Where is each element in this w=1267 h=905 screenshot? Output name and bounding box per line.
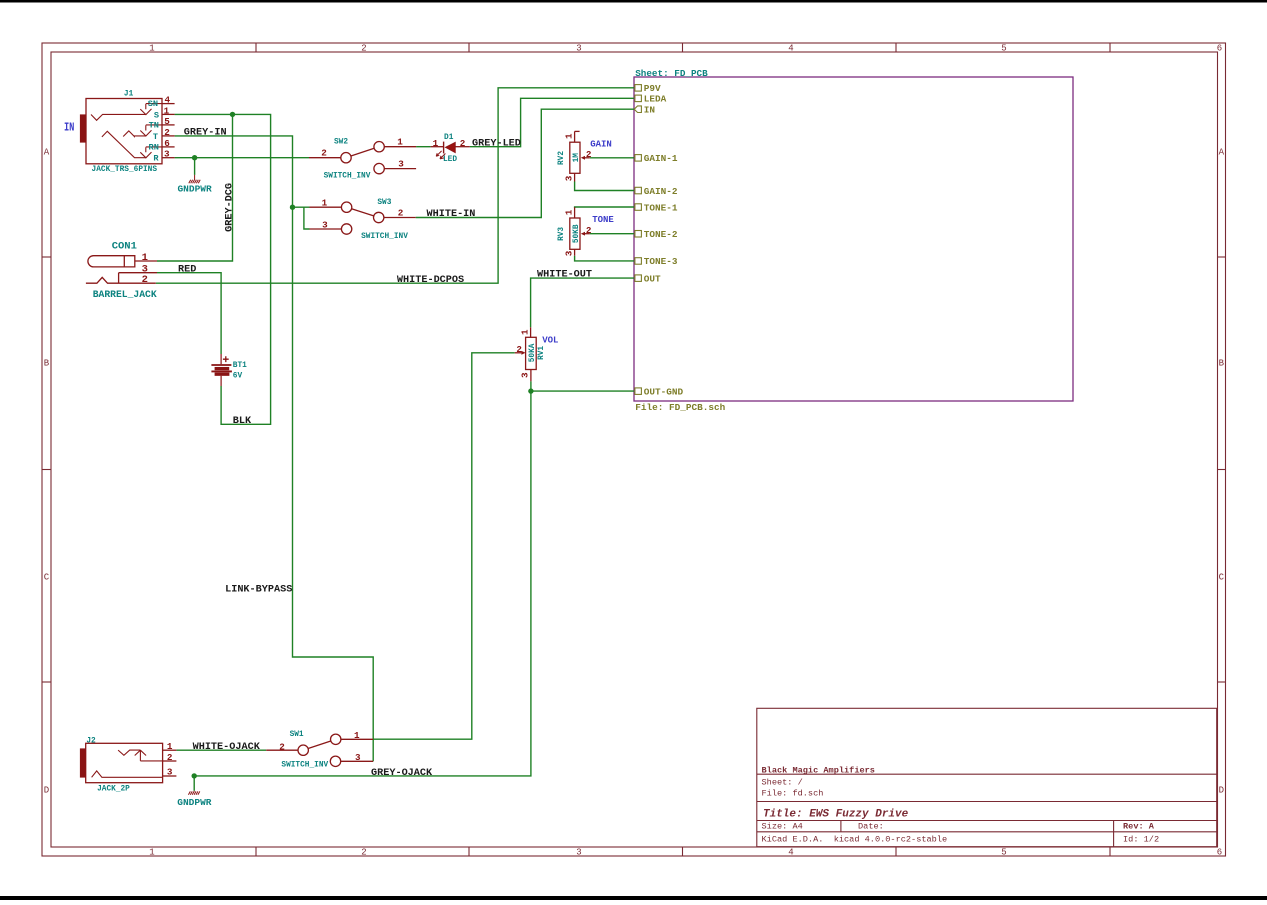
svg-text:6: 6 bbox=[164, 138, 170, 149]
svg-text:RN: RN bbox=[149, 143, 159, 153]
svg-text:SW1: SW1 bbox=[290, 731, 304, 739]
svg-text:1: 1 bbox=[167, 741, 173, 752]
svg-text:GAIN-2: GAIN-2 bbox=[644, 186, 678, 197]
svg-text:CON1: CON1 bbox=[112, 240, 137, 252]
svg-text:1: 1 bbox=[397, 136, 403, 147]
svg-text:File: fd.sch: File: fd.sch bbox=[762, 789, 824, 799]
svg-text:3: 3 bbox=[322, 220, 328, 231]
svg-text:RV3: RV3 bbox=[558, 227, 566, 241]
svg-text:WHITE-DCPOS: WHITE-DCPOS bbox=[397, 275, 464, 286]
svg-text:2: 2 bbox=[398, 208, 404, 219]
svg-text:GNDPWR: GNDPWR bbox=[177, 797, 212, 808]
svg-text:SWITCH_INV: SWITCH_INV bbox=[324, 173, 371, 181]
svg-text:WHITE-OUT: WHITE-OUT bbox=[537, 269, 592, 280]
svg-text:P9V: P9V bbox=[644, 83, 661, 94]
svg-text:6: 6 bbox=[1217, 44, 1222, 54]
svg-text:T: T bbox=[153, 132, 158, 142]
svg-text:S: S bbox=[154, 111, 159, 121]
svg-text:Date:: Date: bbox=[858, 822, 884, 832]
svg-text:GREY-IN: GREY-IN bbox=[184, 127, 227, 138]
svg-text:File: FD_PCB.sch: File: FD_PCB.sch bbox=[635, 402, 725, 413]
svg-text:SN: SN bbox=[148, 99, 158, 109]
svg-text:BARREL_JACK: BARREL_JACK bbox=[93, 289, 157, 300]
svg-text:2: 2 bbox=[516, 344, 522, 355]
svg-text:WHITE-OJACK: WHITE-OJACK bbox=[193, 742, 261, 753]
svg-text:3: 3 bbox=[564, 175, 575, 181]
svg-text:Sheet: FD_PCB: Sheet: FD_PCB bbox=[635, 68, 708, 79]
svg-text:GAIN-1: GAIN-1 bbox=[644, 153, 678, 164]
svg-text:5: 5 bbox=[1001, 848, 1006, 858]
svg-text:OUT: OUT bbox=[644, 273, 661, 284]
svg-text:2: 2 bbox=[167, 752, 173, 763]
svg-text:1M: 1M bbox=[573, 153, 581, 163]
svg-text:LED: LED bbox=[443, 156, 457, 164]
svg-text:J1: J1 bbox=[124, 90, 134, 98]
svg-text:RV2: RV2 bbox=[558, 151, 566, 165]
svg-text:3: 3 bbox=[564, 250, 575, 256]
svg-text:1: 1 bbox=[149, 848, 154, 858]
svg-text:OUT-GND: OUT-GND bbox=[644, 386, 684, 397]
svg-text:A: A bbox=[1219, 148, 1225, 158]
svg-text:3: 3 bbox=[398, 158, 404, 169]
svg-text:2: 2 bbox=[586, 225, 592, 236]
svg-text:2: 2 bbox=[460, 138, 466, 149]
svg-text:Sheet: /: Sheet: / bbox=[762, 777, 803, 787]
svg-text:D1: D1 bbox=[444, 134, 454, 142]
svg-text:BT1: BT1 bbox=[233, 362, 247, 370]
svg-text:2: 2 bbox=[361, 44, 366, 54]
svg-text:1: 1 bbox=[142, 252, 148, 264]
svg-text:LEDA: LEDA bbox=[644, 94, 667, 105]
svg-text:1: 1 bbox=[433, 138, 439, 149]
svg-text:R: R bbox=[153, 154, 159, 164]
svg-text:5: 5 bbox=[1001, 44, 1006, 54]
svg-text:2: 2 bbox=[142, 274, 148, 286]
svg-text:2: 2 bbox=[321, 148, 327, 159]
svg-text:BLK: BLK bbox=[233, 416, 252, 427]
svg-text:SW3: SW3 bbox=[377, 199, 391, 207]
svg-text:1: 1 bbox=[564, 133, 575, 139]
svg-text:6: 6 bbox=[1217, 848, 1222, 858]
svg-text:Rev: A: Rev: A bbox=[1123, 822, 1155, 832]
svg-text:TONE-1: TONE-1 bbox=[644, 202, 678, 213]
svg-text:VOL: VOL bbox=[542, 336, 558, 346]
svg-text:1: 1 bbox=[149, 44, 154, 54]
svg-text:TN: TN bbox=[149, 121, 159, 131]
svg-text:GAIN: GAIN bbox=[590, 140, 612, 150]
svg-text:JACK_2P: JACK_2P bbox=[97, 785, 130, 793]
svg-text:1: 1 bbox=[564, 209, 575, 215]
svg-text:1: 1 bbox=[519, 329, 530, 335]
svg-text:1: 1 bbox=[354, 730, 360, 741]
svg-text:RV1: RV1 bbox=[538, 346, 546, 360]
svg-text:B: B bbox=[1219, 359, 1225, 369]
svg-text:Size: A4: Size: A4 bbox=[762, 822, 803, 832]
svg-text:GREY-DCG: GREY-DCG bbox=[225, 183, 236, 232]
svg-text:GREY-LED: GREY-LED bbox=[472, 138, 521, 149]
svg-text:TONE-3: TONE-3 bbox=[644, 256, 678, 267]
svg-text:KiCad E.D.A. kicad 4.0.0-rc2-: KiCad E.D.A. kicad 4.0.0-rc2-stable bbox=[762, 835, 948, 845]
svg-text:2: 2 bbox=[164, 127, 170, 138]
svg-text:1: 1 bbox=[322, 198, 328, 209]
svg-text:Black Magic Amplifiers: Black Magic Amplifiers bbox=[762, 765, 875, 775]
svg-text:1: 1 bbox=[164, 106, 170, 117]
svg-text:SWITCH_INV: SWITCH_INV bbox=[361, 233, 408, 241]
svg-text:3: 3 bbox=[355, 752, 361, 763]
svg-text:SW2: SW2 bbox=[334, 138, 348, 146]
svg-text:RED: RED bbox=[178, 264, 196, 275]
svg-text:50KA: 50KA bbox=[529, 343, 537, 362]
svg-text:4: 4 bbox=[788, 44, 793, 54]
svg-text:LINK-BYPASS: LINK-BYPASS bbox=[225, 584, 292, 595]
svg-text:SWITCH_INV: SWITCH_INV bbox=[281, 761, 328, 769]
svg-text:B: B bbox=[44, 359, 50, 369]
svg-text:2: 2 bbox=[361, 848, 366, 858]
svg-text:5: 5 bbox=[164, 116, 170, 127]
svg-text:3: 3 bbox=[164, 148, 170, 159]
svg-text:4: 4 bbox=[788, 848, 793, 858]
svg-text:C: C bbox=[44, 573, 50, 583]
svg-text:A: A bbox=[44, 148, 50, 158]
svg-text:TONE-2: TONE-2 bbox=[644, 229, 678, 240]
svg-text:TONE: TONE bbox=[592, 215, 614, 225]
svg-text:JACK_TRS_6PINS: JACK_TRS_6PINS bbox=[92, 166, 158, 174]
svg-text:IN: IN bbox=[64, 121, 75, 134]
svg-text:GNDPWR: GNDPWR bbox=[177, 184, 212, 195]
svg-text:GREY-OJACK: GREY-OJACK bbox=[371, 768, 433, 779]
svg-text:4: 4 bbox=[165, 95, 171, 106]
svg-text:D: D bbox=[1219, 786, 1224, 796]
svg-text:C: C bbox=[1219, 573, 1225, 583]
svg-text:IN: IN bbox=[644, 105, 656, 116]
svg-text:6V: 6V bbox=[233, 373, 243, 381]
svg-text:D: D bbox=[44, 786, 49, 796]
svg-text:3: 3 bbox=[167, 767, 173, 778]
svg-text:2: 2 bbox=[279, 741, 285, 752]
svg-text:2: 2 bbox=[586, 149, 592, 160]
svg-text:WHITE-IN: WHITE-IN bbox=[427, 209, 476, 220]
svg-text:3: 3 bbox=[576, 848, 581, 858]
svg-text:50KB: 50KB bbox=[573, 224, 581, 243]
svg-text:J2: J2 bbox=[86, 737, 96, 745]
svg-text:Title: EWS Fuzzy Drive: Title: EWS Fuzzy Drive bbox=[763, 808, 909, 820]
svg-text:3: 3 bbox=[576, 44, 581, 54]
svg-text:3: 3 bbox=[519, 372, 530, 378]
svg-text:Id: 1/2: Id: 1/2 bbox=[1123, 835, 1159, 845]
